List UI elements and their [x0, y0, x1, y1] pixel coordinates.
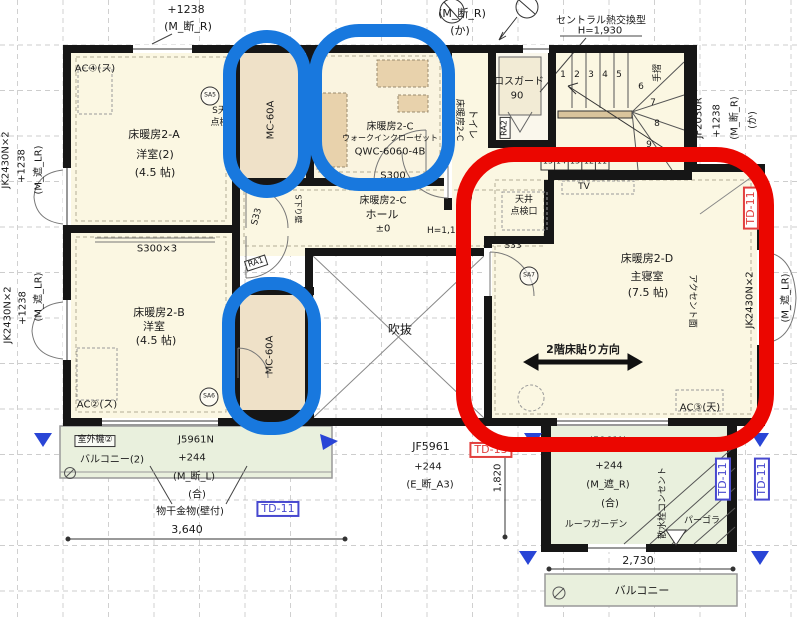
left-window1-offset: +1238: [17, 149, 28, 183]
stair-tread-4: 4: [602, 71, 608, 81]
balcony-left-win-grade: (合): [188, 490, 206, 501]
left-window2-offset: +1238: [18, 291, 29, 325]
dim-2730: 2,730: [622, 555, 654, 567]
roof-win-offset: +244: [414, 462, 441, 473]
room-b-shelf-label: S300×3: [137, 244, 177, 255]
dim-3640: 3,640: [171, 524, 203, 536]
window-kana-top-mid: (か): [450, 25, 470, 37]
td11-blue-right1-label: TD-11: [715, 457, 731, 500]
dim-1820: 1,820: [493, 464, 504, 493]
annotation-circle-blue-closet-top: [223, 30, 311, 198]
room-a-ac-label: AC④(ス): [75, 64, 115, 75]
room-b-ac-label: AC②(ス): [77, 400, 117, 411]
balcony-left-name: バルコニー(2): [80, 455, 144, 466]
stair-window-offset: +1238: [712, 104, 723, 138]
lossguard-num: 90: [511, 91, 524, 102]
room-b-sa-badge: SA6: [200, 388, 219, 407]
hall-kind: ホール: [366, 209, 399, 221]
room-b-size: (4.5 帖): [136, 335, 177, 347]
room-a-sa-badge: SA5: [201, 87, 220, 106]
right-window-type: (M_遮_LR): [781, 274, 792, 323]
room-b-name: 床暖房2-B: [133, 307, 185, 319]
stair-tread-3: 3: [588, 71, 594, 81]
annotation-circle-red-bedroom: [456, 147, 774, 452]
window-offset-top-left: +1238: [167, 4, 204, 16]
hall-name: 床暖房2-C: [360, 196, 407, 207]
stair-window-kana: (か): [748, 111, 759, 129]
stair-tread-2: 2: [574, 71, 580, 81]
balcony-right-name: バルコニー: [615, 585, 670, 597]
window-type-top-left: (M_断_R): [164, 21, 212, 33]
left-window2-type: (M_遮_LR): [34, 273, 45, 322]
pergola-label: パーゴラ: [684, 517, 720, 527]
left-window1-spec: JK2430N×2: [1, 131, 12, 188]
roof-win-type: (E_断_A3): [406, 480, 453, 491]
roof-win-spec: JF5961: [412, 441, 450, 453]
hall-drop-wall-label: S下り壁: [293, 194, 302, 223]
stair-tread-5: 5: [616, 71, 622, 81]
room-b-kind: 洋室: [143, 321, 165, 333]
balcony-left-win-spec: J5961N: [178, 435, 214, 446]
balcony-right-win-type: (M_遮_R): [586, 480, 629, 491]
hall-level: ±0: [376, 224, 391, 235]
stair-window-spec: JF2030R: [694, 97, 705, 138]
room-a-name: 床暖房2-A: [128, 129, 180, 141]
balcony-right-win-grade: (合): [601, 499, 619, 510]
stair-handrail-label: 手摺: [654, 64, 664, 82]
floorplan-canvas: +1238 (M_断_R) (M_断_R) (か) セントラル熱交換型 H=1,…: [0, 0, 800, 617]
annotation-circle-blue-wic: [309, 24, 455, 191]
stair-window-type: (M_断_R): [730, 96, 741, 139]
stair-tread-7: 7: [650, 99, 656, 109]
balcony-left-win-type: (M_断_L): [173, 472, 215, 483]
td11-blue-right2-label: TD-11: [754, 457, 770, 500]
stair-tread-6: 6: [638, 83, 644, 93]
room-a-size: (4.5 帖): [135, 167, 176, 179]
balcony-left-win-offset: +244: [178, 453, 205, 464]
window-type-top-mid: (M_断_R): [438, 8, 486, 20]
left-window1-type: (M_遮_LR): [34, 146, 45, 195]
void-label: 吹抜: [388, 323, 412, 336]
lossguard-ra-badge: RA2: [500, 117, 511, 139]
faucet-outlet-label: 散水栓コンセント: [659, 467, 669, 539]
balcony-right-win-offset: +244: [595, 461, 622, 472]
lossguard-name: ロスガード: [494, 77, 544, 88]
annotation-circle-blue-closet-bottom: [222, 277, 321, 435]
stair-tread-8: 8: [654, 120, 660, 130]
room-a-kind: 洋室(2): [136, 149, 174, 161]
left-window2-spec: JK2430N×2: [3, 286, 14, 343]
laundry-hook-label: 物干金物(壁付): [156, 507, 224, 518]
central-hx-height: H=1,930: [578, 26, 623, 37]
roof-garden-label: ルーフガーデン: [565, 521, 627, 531]
stair-tread-1: 1: [560, 71, 566, 81]
outdoor-unit-2-label: 室外機②: [74, 435, 115, 447]
td11-blue-left-label: TD-11: [256, 501, 299, 517]
toilet-kind: トイレ: [467, 109, 478, 139]
